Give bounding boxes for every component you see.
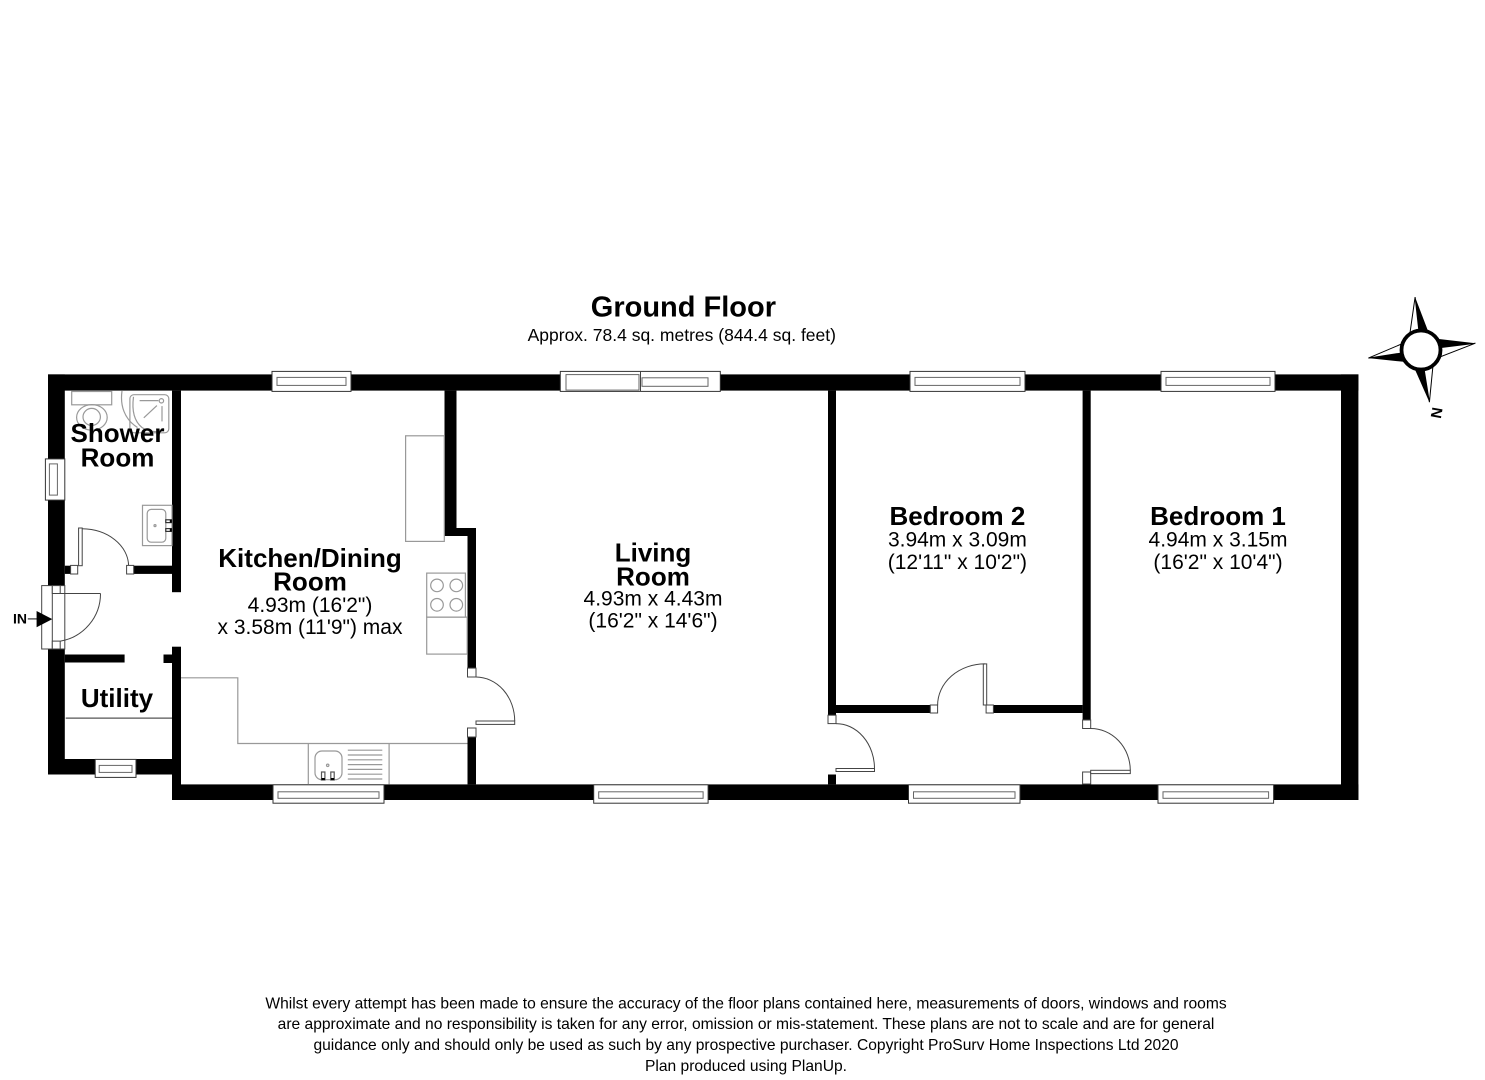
svg-text:Bedroom 2: Bedroom 2 <box>889 501 1025 531</box>
svg-text:are approximate and no respons: are approximate and no responsibility is… <box>278 1016 1215 1033</box>
svg-text:Utility: Utility <box>81 683 154 713</box>
svg-text:Approx. 78.4 sq. metres (844.4: Approx. 78.4 sq. metres (844.4 sq. feet) <box>528 325 836 345</box>
svg-text:4.93m x 4.43m: 4.93m x 4.43m <box>584 588 723 611</box>
svg-text:(16'2" x 14'6"): (16'2" x 14'6") <box>588 610 717 633</box>
svg-text:(12'11" x 10'2"): (12'11" x 10'2") <box>888 551 1027 574</box>
svg-text:(16'2" x 10'4"): (16'2" x 10'4") <box>1153 551 1282 574</box>
svg-text:Room: Room <box>273 567 347 597</box>
svg-text:Plan produced using PlanUp.: Plan produced using PlanUp. <box>645 1058 847 1075</box>
svg-text:Room: Room <box>81 443 155 473</box>
svg-text:guidance only and should only: guidance only and should only be used as… <box>313 1037 1178 1054</box>
svg-text:4.94m x 3.15m: 4.94m x 3.15m <box>1149 529 1288 552</box>
svg-text:Ground Floor: Ground Floor <box>591 292 776 324</box>
svg-text:4.93m (16'2"): 4.93m (16'2") <box>248 594 373 617</box>
svg-text:IN: IN <box>13 611 27 627</box>
svg-text:x 3.58m (11'9") max: x 3.58m (11'9") max <box>218 616 403 639</box>
svg-text:Bedroom 1: Bedroom 1 <box>1150 501 1286 531</box>
svg-text:Whilst every attempt has been: Whilst every attempt has been made to en… <box>265 995 1226 1012</box>
svg-text:3.94m x 3.09m: 3.94m x 3.09m <box>888 529 1027 552</box>
